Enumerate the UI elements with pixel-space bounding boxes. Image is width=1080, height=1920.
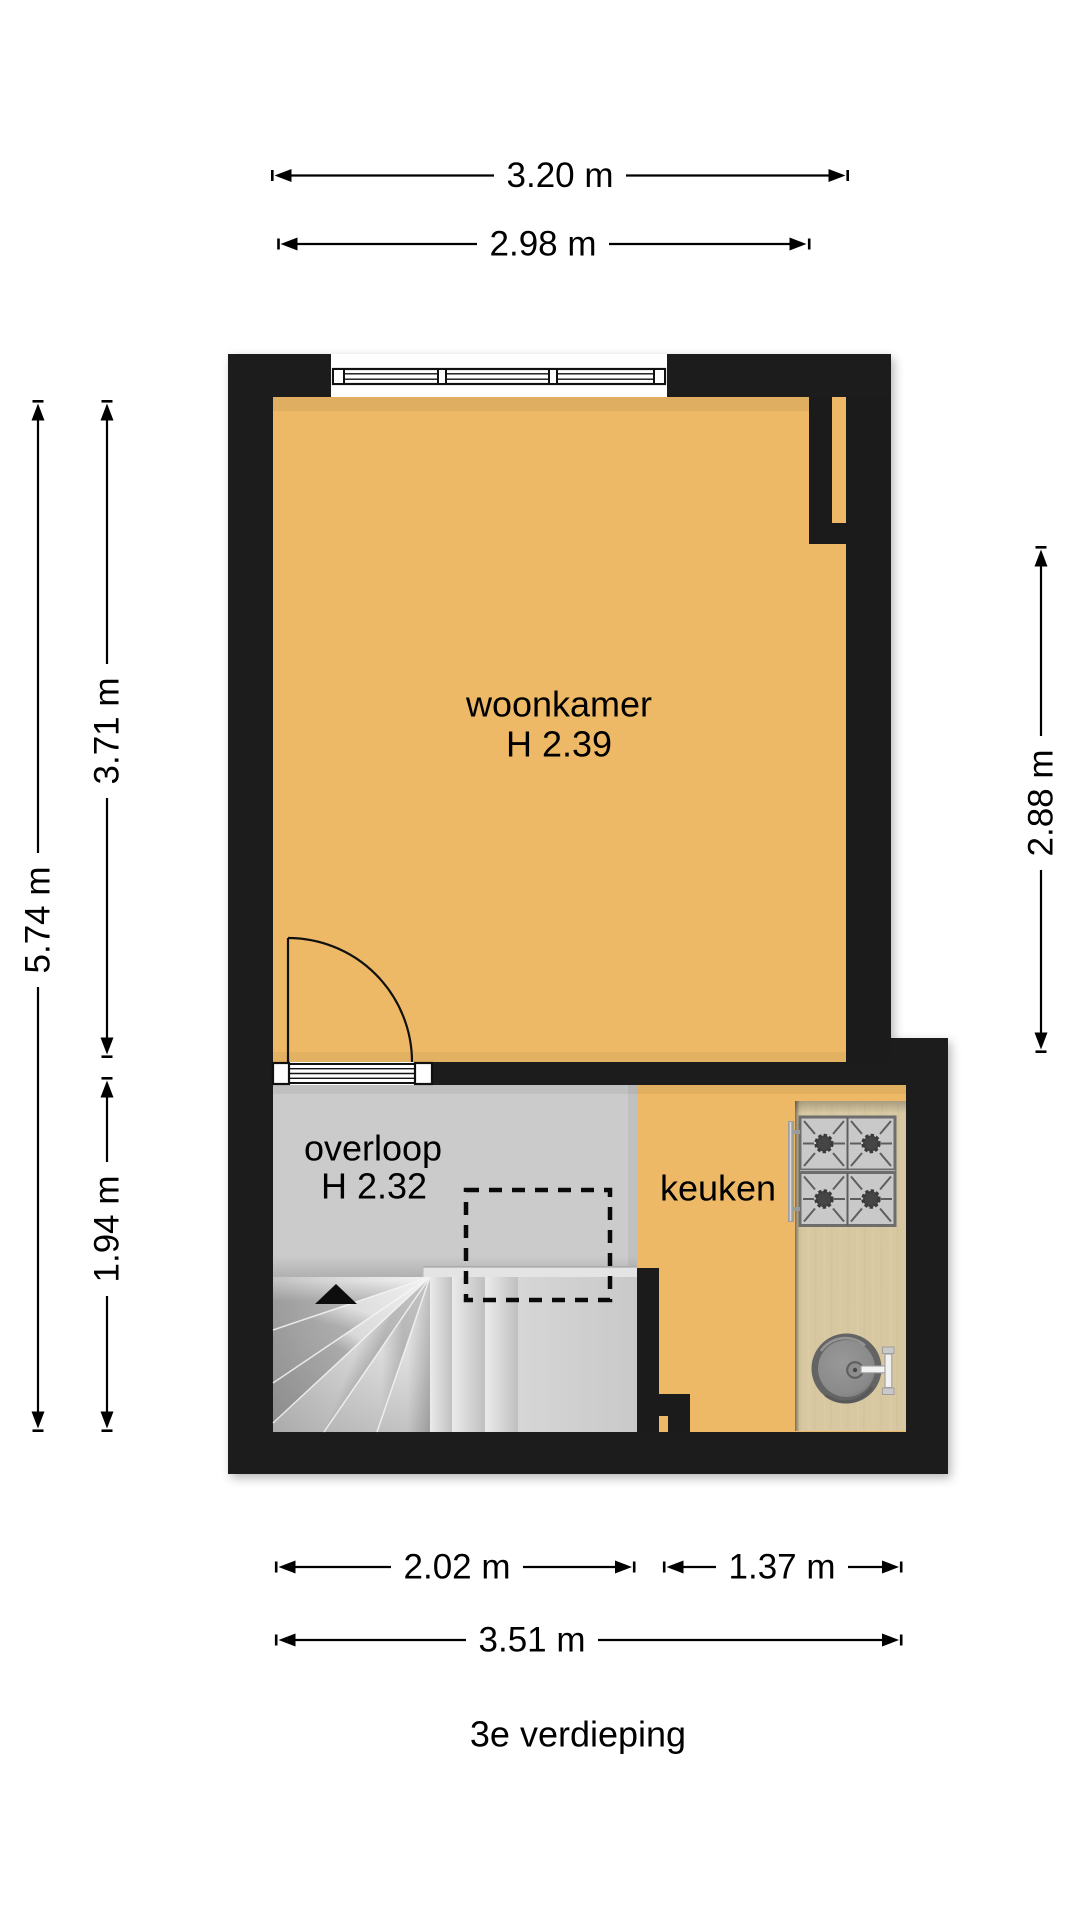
svg-text:1.37 m: 1.37 m	[729, 1548, 836, 1587]
svg-text:1.94 m: 1.94 m	[88, 1176, 127, 1283]
svg-text:3.71 m: 3.71 m	[88, 678, 127, 785]
svg-text:overloop: overloop	[304, 1128, 442, 1169]
svg-text:H 2.39: H 2.39	[506, 724, 612, 765]
svg-text:3.51 m: 3.51 m	[479, 1621, 586, 1660]
svg-text:2.98 m: 2.98 m	[490, 225, 597, 264]
svg-text:3.20 m: 3.20 m	[507, 156, 614, 195]
svg-text:2.02 m: 2.02 m	[404, 1548, 511, 1587]
svg-text:3e verdieping: 3e verdieping	[470, 1714, 686, 1755]
svg-text:H 2.32: H 2.32	[321, 1166, 427, 1207]
svg-text:woonkamer: woonkamer	[465, 684, 652, 725]
svg-text:5.74 m: 5.74 m	[19, 867, 58, 974]
svg-text:keuken: keuken	[660, 1168, 776, 1209]
svg-text:2.88 m: 2.88 m	[1022, 750, 1061, 857]
